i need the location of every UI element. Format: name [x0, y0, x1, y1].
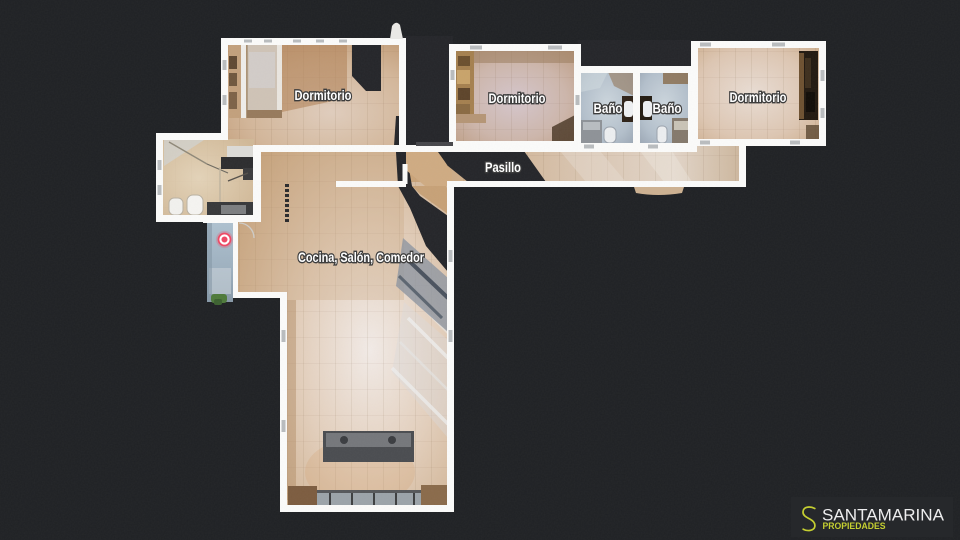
svg-text:PROPIEDADES: PROPIEDADES: [823, 521, 886, 531]
svg-text:Dormitorio: Dormitorio: [730, 89, 787, 105]
svg-text:Baño: Baño: [653, 100, 682, 116]
svg-text:Dormitorio: Dormitorio: [295, 87, 352, 103]
svg-text:Cocina, Salón, Comedor: Cocina, Salón, Comedor: [298, 249, 424, 265]
svg-text:Pasillo: Pasillo: [485, 159, 521, 175]
svg-text:Dormitorio: Dormitorio: [489, 90, 546, 106]
svg-text:Baño: Baño: [594, 100, 623, 116]
